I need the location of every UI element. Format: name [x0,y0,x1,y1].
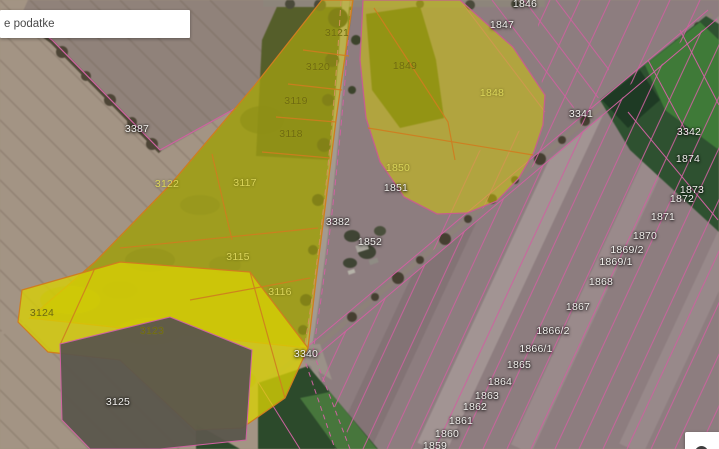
panorama-button[interactable] [685,432,719,449]
search-input[interactable] [0,10,190,38]
cadastral-overlay-layer [0,0,719,449]
map-viewport[interactable]: 3387312131203119311831223117311531163124… [0,0,719,449]
panorama-icon [695,446,708,449]
